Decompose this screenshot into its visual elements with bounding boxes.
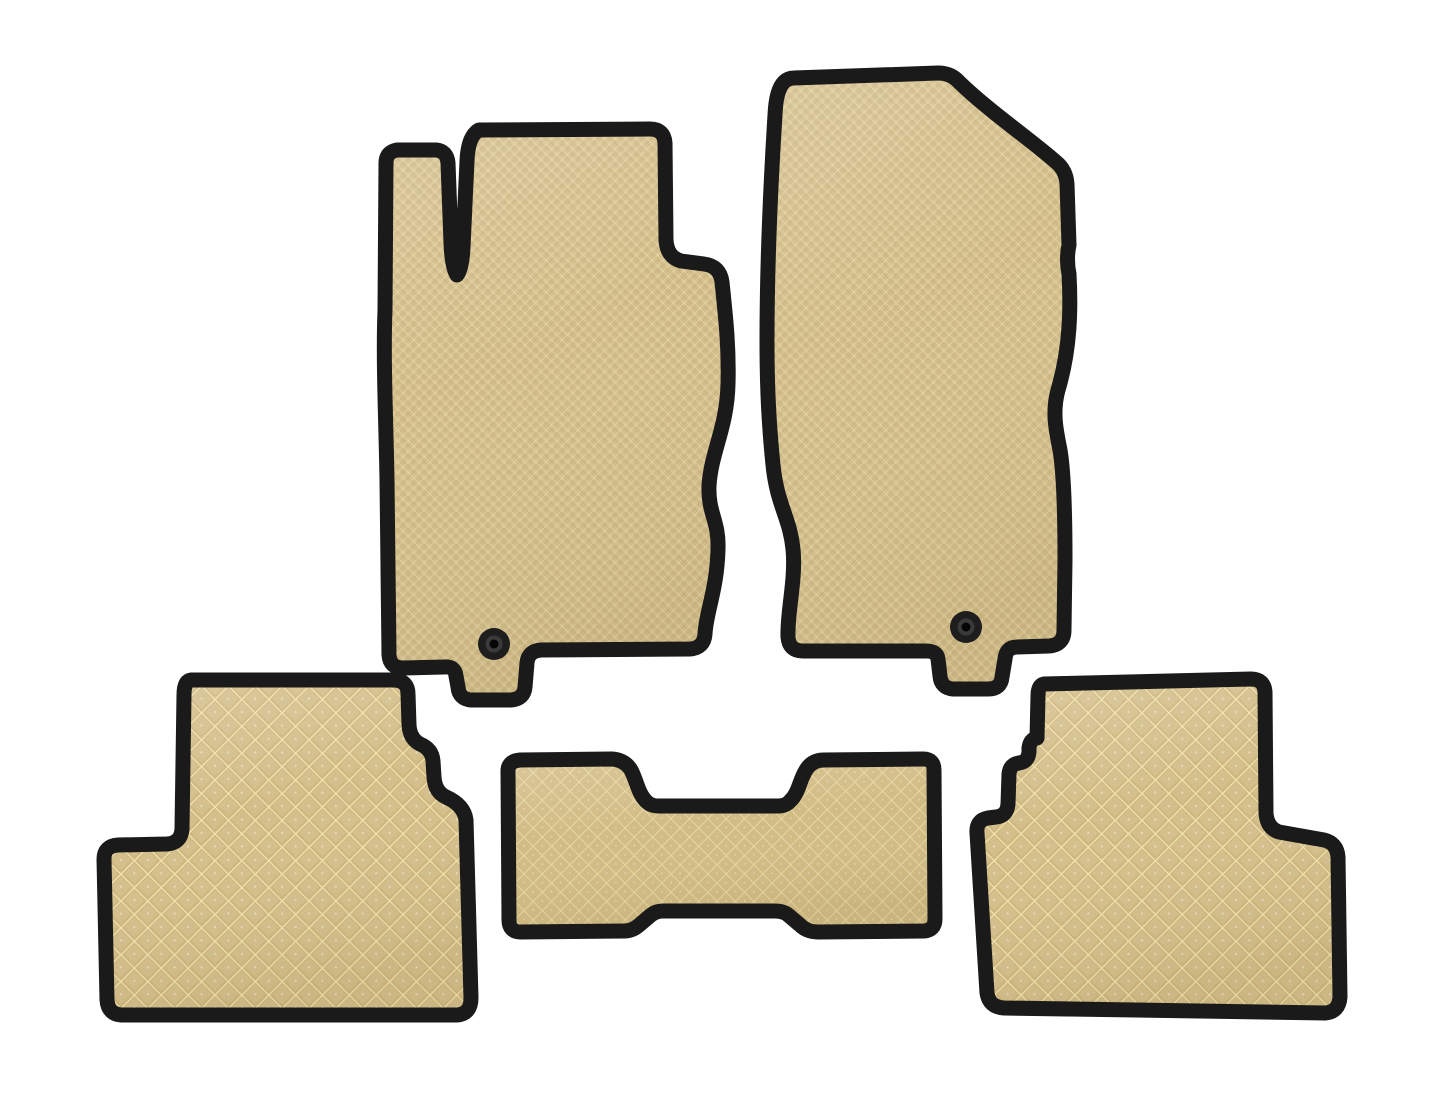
driver-mat xyxy=(384,129,728,700)
rear-right-mat xyxy=(977,679,1340,1013)
rear-left-mat xyxy=(104,680,471,1015)
car-mat-set-illustration xyxy=(0,0,1445,1109)
fastener-hole xyxy=(962,623,971,632)
fastener-hole xyxy=(490,640,499,649)
center-tunnel-mat-edging xyxy=(508,759,935,932)
passenger-mat-fastener-clip xyxy=(950,611,982,643)
product-photo-car-mat-set xyxy=(0,0,1445,1109)
center-tunnel-mat xyxy=(508,759,935,932)
driver-mat-fastener-clip xyxy=(478,628,510,660)
rear-right-mat-edging xyxy=(977,679,1340,1013)
passenger-mat-edging xyxy=(767,73,1070,689)
rear-left-mat-edging xyxy=(104,680,471,1015)
passenger-mat xyxy=(767,73,1070,689)
driver-mat-edging xyxy=(384,129,728,700)
